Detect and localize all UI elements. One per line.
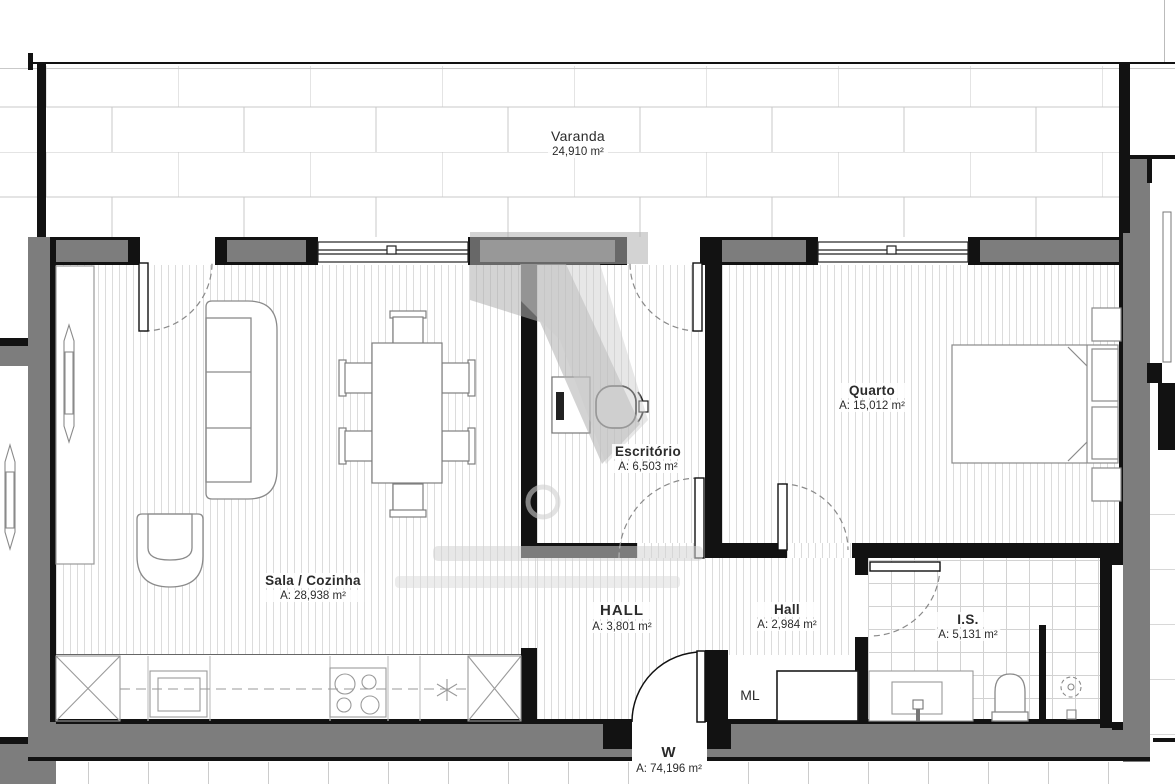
vanity-sink	[869, 671, 973, 721]
toilet	[992, 674, 1028, 721]
room-label-w: W A: 74,196 m²	[633, 744, 705, 775]
room-label-is: I.S. A: 5,131 m²	[935, 612, 1000, 641]
room-area: A: 2,984 m²	[754, 619, 819, 631]
neighbor-balcony-tiles	[0, 70, 37, 237]
sideboard	[56, 266, 94, 564]
nightstand	[1092, 308, 1121, 341]
label-ml: ML	[740, 687, 759, 703]
room-name: Hall	[754, 602, 819, 617]
monitor-icon	[556, 392, 564, 420]
ml-text: ML	[740, 687, 759, 703]
dining-set	[339, 311, 475, 517]
room-label-hall-main: HALL A: 3,801 m²	[589, 602, 654, 633]
room-label-varanda: Varanda 24,910 m²	[548, 128, 608, 158]
room-name: I.S.	[935, 612, 1000, 627]
room-area: A: 5,131 m²	[935, 629, 1000, 641]
room-area: A: 15,012 m²	[836, 400, 908, 412]
extractor-asterisk	[437, 679, 457, 701]
tv-icon	[64, 325, 74, 442]
shower-drain	[1061, 677, 1081, 719]
room-label-escritorio: Escritório A: 6,503 m²	[612, 444, 684, 473]
pillow	[1092, 407, 1118, 459]
room-area: 24,910 m²	[548, 146, 608, 158]
room-area: A: 74,196 m²	[633, 763, 705, 775]
room-area: A: 3,801 m²	[589, 621, 654, 633]
armchair	[137, 514, 203, 587]
room-label-quarto: Quarto A: 15,012 m²	[836, 383, 908, 412]
room-name: W	[633, 744, 705, 761]
sofa	[206, 301, 277, 499]
door-is	[870, 562, 940, 636]
room-label-hall-small: Hall A: 2,984 m²	[754, 602, 819, 631]
room-name: Varanda	[548, 128, 608, 144]
neighbor-door-leaf	[1163, 212, 1171, 362]
room-name: Quarto	[836, 383, 908, 398]
door-sala-balcony	[139, 263, 212, 331]
double-bed	[952, 345, 1118, 463]
washing-machine	[777, 671, 858, 721]
plan-symbols	[0, 0, 1175, 784]
room-name: Escritório	[612, 444, 684, 459]
neighbor-tv-icon	[5, 445, 15, 549]
floor-plan: Varanda 24,910 m² Sala / Cozinha A: 28,9…	[0, 0, 1175, 784]
kitchen-symbols	[56, 656, 521, 721]
window-quarto	[818, 242, 968, 262]
door-quarto	[778, 484, 848, 550]
door-escritorio-balcony	[630, 263, 702, 331]
window-sala	[318, 242, 468, 262]
door-entrance	[632, 651, 705, 722]
room-name: HALL	[589, 602, 654, 619]
nightstand	[1092, 468, 1121, 501]
room-name: Sala / Cozinha	[262, 573, 364, 588]
room-area: A: 28,938 m²	[262, 590, 364, 602]
dining-table	[372, 343, 442, 483]
room-label-sala-cozinha: Sala / Cozinha A: 28,938 m²	[262, 573, 364, 602]
pillow	[1092, 349, 1118, 401]
room-area: A: 6,503 m²	[612, 461, 684, 473]
